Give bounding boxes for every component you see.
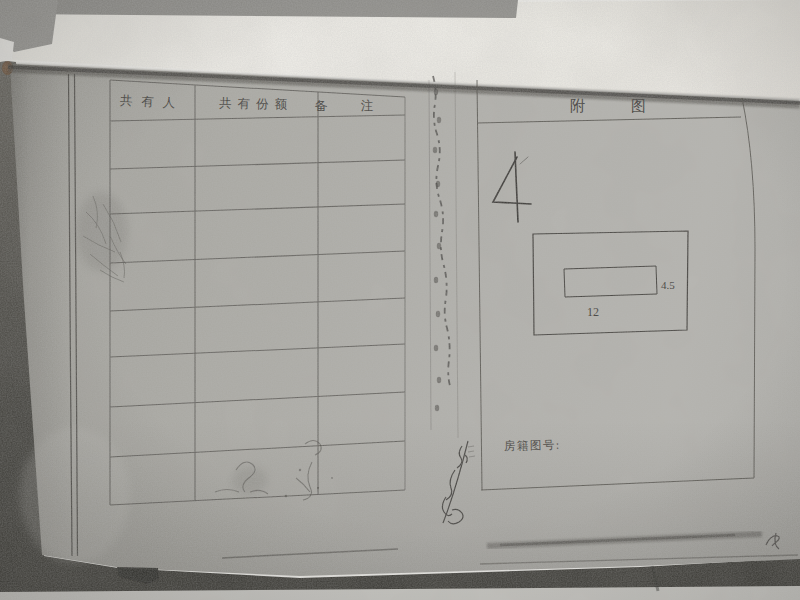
floor-plan-inner-rect	[564, 266, 657, 297]
dimension-width-label: 12	[587, 305, 599, 319]
co-owner-table	[110, 80, 405, 505]
co-owner-table-headers: 共有人 共有份额 备注	[120, 94, 408, 113]
handwritten-annotation	[442, 441, 475, 524]
smudged-stamp-marks	[215, 441, 333, 501]
dimension-height-label: 4.5	[661, 279, 675, 291]
photo-of-document: 共有人 共有份额 备注 附图	[0, 0, 800, 600]
col-header-co-owner: 共有人	[120, 94, 185, 111]
col-header-share: 共有份额	[219, 96, 293, 111]
page-linework: 共有人 共有份额 备注 附图	[0, 0, 800, 600]
handwritten-page-number	[493, 152, 531, 222]
binding-staple-marks	[433, 89, 441, 411]
crease-shadow	[487, 534, 762, 546]
desk-creases	[222, 549, 798, 591]
handwritten-mark	[766, 533, 779, 549]
dark-edge-blob	[117, 567, 159, 584]
smudge-blotch	[232, 466, 268, 494]
attached-figure-panel	[477, 80, 755, 490]
house-registry-number-label: 房籍图号:	[504, 439, 561, 452]
stain-blotch	[76, 192, 128, 272]
col-header-remarks: 备注	[315, 99, 408, 113]
page-fold-highlight	[20, 427, 130, 563]
binding-fold-line	[429, 72, 458, 438]
panel-title: 附图	[570, 98, 692, 114]
